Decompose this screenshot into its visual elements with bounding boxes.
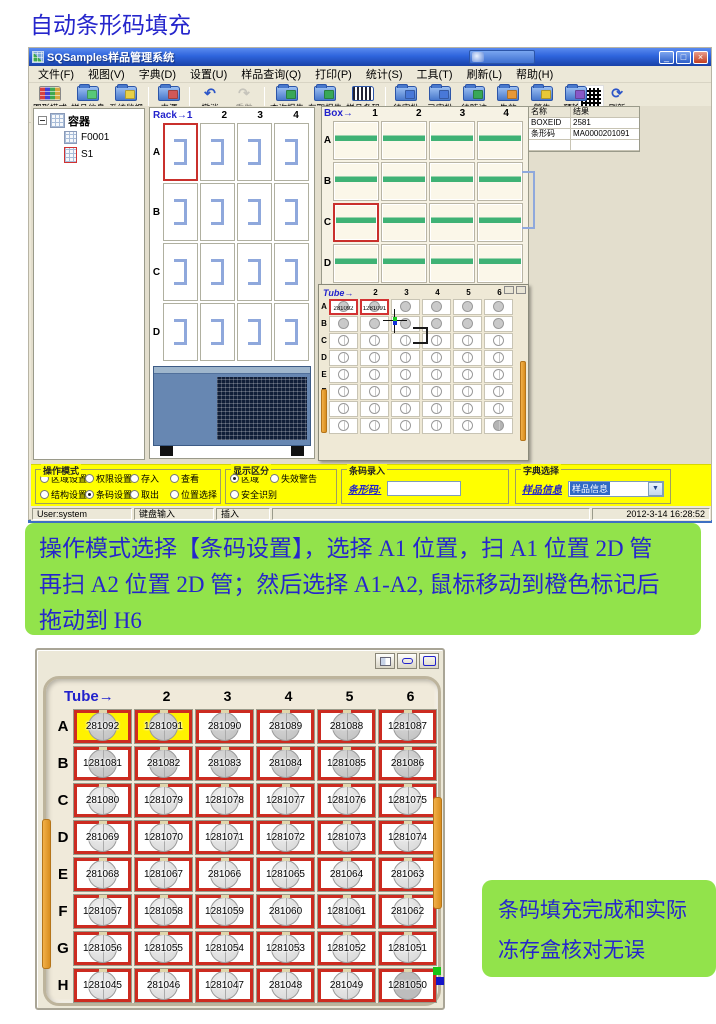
box-cell-A2[interactable]	[381, 121, 427, 160]
orange-marker-left[interactable]	[321, 389, 327, 433]
tube-cell-A5[interactable]	[453, 299, 482, 315]
box-col-header: 4	[484, 108, 528, 119]
box-header: Box→1234	[322, 107, 528, 120]
radio-label: 安全识别	[241, 488, 277, 501]
tube-cell-D1[interactable]	[329, 350, 358, 366]
tube-cell-H4[interactable]	[422, 418, 451, 434]
tube-cell-F3[interactable]	[391, 384, 420, 400]
tube-barcode: 1281073	[321, 832, 372, 843]
results-col-name: 名称	[529, 107, 571, 117]
tube-cell-G5[interactable]	[453, 401, 482, 417]
rack-icon	[285, 199, 298, 225]
tube-cell-G4[interactable]	[422, 401, 451, 417]
grid-row-label: H	[52, 977, 74, 994]
tube-cell-G1[interactable]	[329, 401, 358, 417]
tube-circle-icon	[431, 301, 442, 312]
results-header: 名称结果	[529, 107, 639, 118]
grid-cell-G5[interactable]: 1281052	[318, 932, 375, 965]
tube-circle-icon	[338, 369, 349, 380]
box-row-label: C	[322, 217, 333, 228]
rack-cell-B3[interactable]	[237, 183, 272, 241]
grid-col-header: 6	[380, 688, 441, 704]
tube-barcode: 1281075	[382, 795, 433, 806]
menu-item[interactable]: 工具(T)	[410, 66, 460, 82]
table-row: 条形码MA0000201091	[529, 129, 639, 140]
tube-cell-E3[interactable]	[391, 367, 420, 383]
tube-cell-F1[interactable]	[329, 384, 358, 400]
tube-cell-G3[interactable]	[391, 401, 420, 417]
rack-cell-A1[interactable]	[163, 123, 198, 181]
orange-handle-right[interactable]	[433, 797, 442, 909]
tube-barcode: 281086	[382, 758, 433, 769]
rack-icon	[174, 259, 187, 285]
freezer-top	[154, 367, 310, 374]
grid-cell-A3[interactable]: 281090	[196, 710, 253, 743]
grid-cell-H1[interactable]: 1281045	[74, 969, 131, 1002]
menu-item[interactable]: 样品查询(Q)	[234, 66, 308, 82]
rack-cell-C3[interactable]	[237, 243, 272, 301]
rack-icon	[211, 259, 224, 285]
tube-row: F	[319, 383, 528, 400]
tube-cell-E4[interactable]	[422, 367, 451, 383]
tube-barcode: 1281055	[138, 943, 189, 954]
rack-row: A	[150, 122, 314, 182]
radio-icon[interactable]	[170, 490, 179, 499]
rack-icon	[248, 139, 261, 165]
results-table: 名称结果BOXEID2581条形码MA0000201091	[528, 106, 640, 152]
rack-cell-D2[interactable]	[200, 303, 235, 361]
radio-option-条码设置[interactable]: 条码设置	[85, 488, 130, 501]
tube-circle-icon	[493, 352, 504, 363]
tube-cell-F4[interactable]	[422, 384, 451, 400]
orange-marker-right[interactable]	[520, 361, 526, 441]
restore-button[interactable]: □	[676, 51, 691, 64]
tube-col-header: 2	[360, 288, 391, 297]
grid-cell-F6[interactable]: 281062	[379, 895, 436, 928]
rack-icon	[248, 199, 261, 225]
chevron-down-icon[interactable]: ▼	[648, 482, 663, 496]
grid-cell-F5[interactable]: 1281061	[318, 895, 375, 928]
small-view-button[interactable]	[397, 653, 417, 669]
tube-cell-F2[interactable]	[360, 384, 389, 400]
tree-item-label: F0001	[81, 132, 109, 143]
grid-cell-C4[interactable]: 1281077	[257, 784, 314, 817]
follow-up-icon	[463, 86, 485, 101]
rack-cell-B2[interactable]	[200, 183, 235, 241]
rack-icon	[211, 199, 224, 225]
grid-cell-A4[interactable]: 281089	[257, 710, 314, 743]
tube-cell-H6[interactable]	[484, 418, 513, 434]
tube-circle-icon	[369, 403, 380, 414]
box-cell-C4[interactable]	[477, 203, 523, 242]
rack-icon	[174, 199, 187, 225]
grid-row: F128105712810581281059281060128106128106…	[52, 893, 441, 930]
grid-cell-D1[interactable]: 281069	[74, 821, 131, 854]
tube-circle-icon	[431, 403, 442, 414]
tree-item-S1[interactable]: S1	[34, 146, 144, 163]
radio-icon[interactable]	[230, 490, 239, 499]
tube-barcode: 281083	[199, 758, 250, 769]
tube-circle-icon	[431, 420, 442, 431]
menu-item[interactable]: 打印(P)	[308, 66, 359, 82]
table-row	[529, 140, 639, 151]
barcode-input[interactable]	[387, 481, 461, 496]
grid-cell-C1[interactable]: 281080	[74, 784, 131, 817]
window-controls: _ □ ×	[659, 51, 708, 64]
orange-handle-left[interactable]	[42, 819, 51, 969]
tube-cell-B5[interactable]	[453, 316, 482, 332]
grid-cell-H5[interactable]: 281049	[318, 969, 375, 1002]
tube-barcode: 281062	[382, 906, 433, 917]
drag-ghost-icon	[413, 327, 428, 344]
tube-barcode: 281068	[77, 869, 128, 880]
radio-option-位置选择[interactable]: 位置选择	[170, 488, 215, 501]
box-cell-C1[interactable]	[333, 203, 379, 242]
box-row: C	[322, 202, 528, 243]
grid-cell-B5[interactable]: 1281085	[318, 747, 375, 780]
tube-cell-E6[interactable]	[484, 367, 513, 383]
tube-row-label: D	[319, 353, 329, 362]
grid-cell-E6[interactable]: 281063	[379, 858, 436, 891]
menu-item[interactable]: 字典(D)	[132, 66, 183, 82]
grid-col-header: 2	[136, 688, 197, 704]
tube-barcode: 281090	[199, 721, 250, 732]
box-cell-D1[interactable]	[333, 244, 379, 283]
refresh-icon: ⟳	[606, 86, 628, 101]
box-cell-D3[interactable]	[429, 244, 475, 283]
rack-cell-A4[interactable]	[274, 123, 309, 181]
dict-dropdown[interactable]: 样品信息 ▼	[568, 481, 664, 497]
tree-item-F0001[interactable]: F0001	[34, 129, 144, 146]
rack-cell-D4[interactable]	[274, 303, 309, 361]
grid-mode-icon	[39, 86, 61, 101]
tube-cell-A6[interactable]	[484, 299, 513, 315]
close-button[interactable]: ×	[693, 51, 708, 64]
grid-cell-B6[interactable]: 281086	[379, 747, 436, 780]
menu-item[interactable]: 视图(V)	[81, 66, 132, 82]
rack-icon	[285, 259, 298, 285]
tube-circle-icon	[462, 301, 473, 312]
tube-barcode: 1281045	[77, 980, 128, 991]
tube-row-label: E	[319, 370, 329, 379]
grid-cell-A5[interactable]: 281088	[318, 710, 375, 743]
grid-cell-E2[interactable]: 1281067	[135, 858, 192, 891]
tube-cell-D6[interactable]	[484, 350, 513, 366]
tube-cell-H5[interactable]	[453, 418, 482, 434]
badge-icon	[472, 52, 484, 62]
rack-row: C	[150, 242, 314, 302]
tube-cell-C5[interactable]	[453, 333, 482, 349]
grid-row-label: A	[52, 718, 74, 735]
grid-row: H128104528104612810472810482810491281050	[52, 967, 441, 1004]
tube-barcode: 1281052	[321, 943, 372, 954]
radio-icon[interactable]	[230, 474, 239, 483]
collapse-icon[interactable]	[38, 116, 47, 125]
radio-icon[interactable]	[40, 490, 49, 499]
tube-cell-F5[interactable]	[453, 384, 482, 400]
tube-barcode: 281092	[77, 721, 128, 732]
radio-icon[interactable]	[85, 474, 94, 483]
tube-circle-icon	[338, 318, 349, 329]
grid-cell-D2[interactable]: 1281070	[135, 821, 192, 854]
tube-cell-E1[interactable]	[329, 367, 358, 383]
menu-item[interactable]: 刷新(L)	[460, 66, 509, 82]
grid-cell-B3[interactable]: 281083	[196, 747, 253, 780]
rack-cell-C1[interactable]	[163, 243, 198, 301]
tube-cell-G2[interactable]	[360, 401, 389, 417]
dict-label[interactable]: 样品信息	[522, 481, 562, 496]
box-cell-B3[interactable]	[429, 162, 475, 201]
grid-cell-F1[interactable]: 1281057	[74, 895, 131, 928]
tube-cell-A1[interactable]: 281092	[329, 299, 358, 315]
tube-barcode: 1281074	[382, 832, 433, 843]
tube-cell-D5[interactable]	[453, 350, 482, 366]
radio-icon[interactable]	[85, 490, 94, 499]
grid-row: E28106812810672810661281065281064281063	[52, 856, 441, 893]
tube-barcode: 281084	[260, 758, 311, 769]
box-cell-B4[interactable]	[477, 162, 523, 201]
menu-item[interactable]: 设置(U)	[183, 66, 234, 82]
grid-cell-E3[interactable]: 281066	[196, 858, 253, 891]
grid-cell-E1[interactable]: 281068	[74, 858, 131, 891]
freezer-foot	[160, 446, 173, 456]
radio-option-权限设置[interactable]: 权限设置	[85, 472, 130, 485]
grid-cell-G3[interactable]: 1281054	[196, 932, 253, 965]
rack-cell-A2[interactable]	[200, 123, 235, 181]
grid-cell-H2[interactable]: 281046	[135, 969, 192, 1002]
container-icon	[64, 147, 77, 163]
box-axis-label: Box→	[322, 108, 353, 119]
group-operation-mode: 操作模式 区域设置权限设置存入查看结构设置条码设置取出位置选择	[35, 469, 221, 504]
status-timestamp: 2012-3-14 16:28:52	[592, 508, 710, 520]
instruction-line: 操作模式选择【条码设置】，选择 A1 位置，扫 A1 位置 2D 管	[39, 531, 687, 567]
box-cell-C2[interactable]	[381, 203, 427, 242]
dict-selected-value: 样品信息	[570, 482, 610, 495]
rack-cell-B4[interactable]	[274, 183, 309, 241]
tube-cell-D3[interactable]	[391, 350, 420, 366]
tube-circle-icon	[369, 386, 380, 397]
grid-cell-C5[interactable]: 1281076	[318, 784, 375, 817]
tree-root[interactable]: 容器	[34, 112, 144, 129]
grid-cell-B4[interactable]: 281084	[257, 747, 314, 780]
grid-cell-H3[interactable]: 1281047	[196, 969, 253, 1002]
grid-cell-D6[interactable]: 1281074	[379, 821, 436, 854]
group-display: 显示区分 区域失效警告安全识别	[225, 469, 337, 504]
radio-icon[interactable]	[170, 474, 179, 483]
grid-header: Tube→23456	[52, 684, 441, 708]
radio-option-安全识别[interactable]: 安全识别	[230, 488, 270, 501]
instruction-line: 拖动到 H6	[39, 603, 687, 639]
radio-icon[interactable]	[130, 474, 139, 483]
box-cell-C3[interactable]	[429, 203, 475, 242]
grid-col-header: 3	[197, 688, 258, 704]
tube-barcode: 1281065	[260, 869, 311, 880]
tube-barcode: 281060	[260, 906, 311, 917]
tube-barcode: 1281076	[321, 795, 372, 806]
rack-row: D	[150, 302, 314, 362]
tube-barcode: 281069	[77, 832, 128, 843]
rack-col-header: 2	[206, 110, 242, 121]
source-icon	[158, 86, 180, 101]
tube-circle-icon	[462, 386, 473, 397]
tube-cell-D2[interactable]	[360, 350, 389, 366]
radio-option-存入[interactable]: 存入	[130, 472, 170, 485]
barcode-link[interactable]: 条形码:	[348, 481, 381, 496]
minimize-button[interactable]: _	[659, 51, 674, 64]
tube-circle-icon	[400, 369, 411, 380]
rack-cell-A3[interactable]	[237, 123, 272, 181]
group-title: 操作模式	[41, 464, 81, 477]
tube-barcode: 1281050	[382, 980, 433, 991]
menu-item[interactable]: 文件(F)	[31, 66, 81, 82]
radio-option-结构设置[interactable]: 结构设置	[40, 488, 85, 501]
radio-option-查看[interactable]: 查看	[170, 472, 215, 485]
tube-cell-E2[interactable]	[360, 367, 389, 383]
page-title: 自动条形码填充	[30, 6, 191, 40]
tube-circle-icon	[431, 335, 442, 346]
grid-cell-C2[interactable]: 1281079	[135, 784, 192, 817]
radio-row: 结构设置条码设置取出位置选择	[36, 487, 220, 502]
tube-circle-icon	[493, 420, 504, 431]
box-cell-D2[interactable]	[381, 244, 427, 283]
tube-cell-G6[interactable]	[484, 401, 513, 417]
grid-row-label: D	[52, 829, 74, 846]
tube-barcode: 1281054	[199, 943, 250, 954]
box-cell-B1[interactable]	[333, 162, 379, 201]
titlebar-badge	[469, 50, 535, 64]
box-cell-A1[interactable]	[333, 121, 379, 160]
grid-row-label: G	[52, 940, 74, 957]
grid-cell-D5[interactable]: 1281073	[318, 821, 375, 854]
grid-cell-H6[interactable]: 1281050	[379, 969, 436, 1002]
tube-barcode: 1281077	[260, 795, 311, 806]
grid-cell-E5[interactable]: 281064	[318, 858, 375, 891]
grid-col-header: 4	[258, 688, 319, 704]
rack-cell-D1[interactable]	[163, 303, 198, 361]
rack-icon	[248, 259, 261, 285]
grid-col-header: 5	[319, 688, 380, 704]
tube-barcode: 1281087	[382, 721, 433, 732]
rack-cell-C2[interactable]	[200, 243, 235, 301]
tube-circle-icon	[431, 369, 442, 380]
tube-barcode: 1281078	[199, 795, 250, 806]
tube-cell-E5[interactable]	[453, 367, 482, 383]
result-value: MA0000201091	[571, 129, 639, 139]
tube-circle-icon	[369, 352, 380, 363]
tube-barcode: 1281053	[260, 943, 311, 954]
group-dictionary: 字典选择 样品信息 样品信息 ▼	[515, 469, 671, 504]
grid-cell-A2[interactable]: 1281091	[135, 710, 192, 743]
tube-barcode: 281080	[77, 795, 128, 806]
grid-cell-G4[interactable]: 1281053	[257, 932, 314, 965]
grid-cell-G1[interactable]: 1281056	[74, 932, 131, 965]
tube-cell-C1[interactable]	[329, 333, 358, 349]
radio-option-取出[interactable]: 取出	[130, 488, 170, 501]
tube-barcode: 1281059	[199, 906, 250, 917]
rack-cell-B1[interactable]	[163, 183, 198, 241]
large-view-button[interactable]	[419, 653, 439, 669]
tube-barcode: 1281051	[382, 943, 433, 954]
grid-cell-B1[interactable]: 1281081	[74, 747, 131, 780]
grid-cell-G6[interactable]: 1281051	[379, 932, 436, 965]
box-cell-A3[interactable]	[429, 121, 475, 160]
grid-cell-F2[interactable]: 1281058	[135, 895, 192, 928]
grid-cell-D3[interactable]: 1281071	[196, 821, 253, 854]
box-row: B	[322, 161, 528, 202]
tree-root-label: 容器	[68, 113, 90, 129]
grid-cell-D4[interactable]: 1281072	[257, 821, 314, 854]
tube-barcode: 281063	[382, 869, 433, 880]
tube-cell-D4[interactable]	[422, 350, 451, 366]
tube-circle-icon	[338, 352, 349, 363]
tube-cell-B6[interactable]	[484, 316, 513, 332]
box-cell-B2[interactable]	[381, 162, 427, 201]
status-segment: 键盘输入	[134, 508, 214, 520]
grid-cell-A6[interactable]: 1281087	[379, 710, 436, 743]
grid-cell-F4[interactable]: 281060	[257, 895, 314, 928]
tube-circle-icon	[338, 335, 349, 346]
tube-barcode: 281082	[138, 758, 189, 769]
tube-cell-C2[interactable]	[360, 333, 389, 349]
rack-cell-C4[interactable]	[274, 243, 309, 301]
rack-cell-D3[interactable]	[237, 303, 272, 361]
grid-cell-B2[interactable]: 281082	[135, 747, 192, 780]
menu-item[interactable]: 统计(S)	[359, 66, 410, 82]
tube-window-controls	[504, 286, 526, 294]
marker-pixel-blue	[436, 977, 444, 985]
tube-row: A2810921281091	[319, 298, 528, 315]
grid-cell-F3[interactable]: 1281059	[196, 895, 253, 928]
grid-cell-C6[interactable]: 1281075	[379, 784, 436, 817]
tube-cell-F6[interactable]	[484, 384, 513, 400]
radio-icon[interactable]	[270, 474, 279, 483]
grid-cell-E4[interactable]: 1281065	[257, 858, 314, 891]
tile-view-button[interactable]	[375, 653, 395, 669]
tube-cell-A4[interactable]	[422, 299, 451, 315]
grid-cell-A1[interactable]: 281092	[74, 710, 131, 743]
tube-cell-H2[interactable]	[360, 418, 389, 434]
tube-barcode: 281089	[260, 721, 311, 732]
tube-cell-C6[interactable]	[484, 333, 513, 349]
tube-circle-icon	[493, 301, 504, 312]
window-title: SQSamples样品管理系统	[47, 49, 174, 65]
radio-option-失效警告[interactable]: 失效警告	[270, 472, 326, 485]
rack-position-indicator	[522, 171, 535, 229]
radio-icon[interactable]	[130, 490, 139, 499]
menu-item[interactable]: 帮助(H)	[509, 66, 560, 82]
box-cell-A4[interactable]	[477, 121, 523, 160]
tube-barcode: 1281085	[321, 758, 372, 769]
grid-cell-C3[interactable]: 1281078	[196, 784, 253, 817]
tube-cell-H1[interactable]	[329, 418, 358, 434]
status-segment: 插入	[216, 508, 270, 520]
tube-minimize-button[interactable]	[504, 286, 514, 294]
tube-maximize-button[interactable]	[516, 286, 526, 294]
tube-cell-B1[interactable]	[329, 316, 358, 332]
tube-cell-H3[interactable]	[391, 418, 420, 434]
grid-cell-G2[interactable]: 1281055	[135, 932, 192, 965]
tube-circle-icon	[400, 352, 411, 363]
rack-icon	[211, 319, 224, 345]
tube-barcode: 281064	[321, 869, 372, 880]
result-value	[571, 140, 639, 150]
result-name	[529, 140, 571, 150]
group-barcode-entry: 条码录入 条形码:	[341, 469, 509, 504]
tube-col-header: 4	[422, 288, 453, 297]
grid-cell-H4[interactable]: 281048	[257, 969, 314, 1002]
box-cell-D4[interactable]	[477, 244, 523, 283]
rack-header: Rack→1234	[150, 108, 314, 122]
